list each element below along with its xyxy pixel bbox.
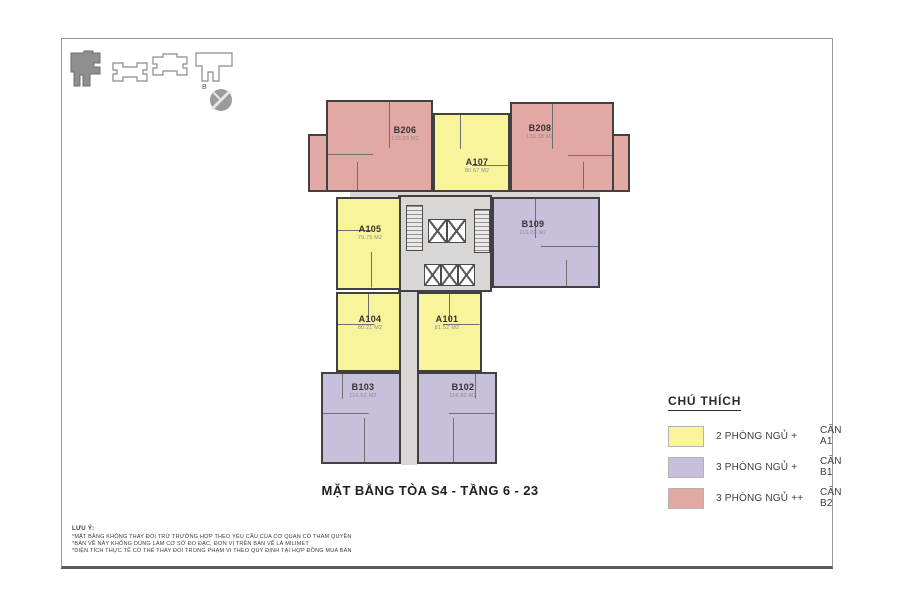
stairs-icon bbox=[406, 205, 423, 251]
unit-area-label: 81.52 M2 bbox=[419, 325, 475, 331]
unit-area-label: 133.38 M2 bbox=[512, 134, 568, 140]
elevator-icon bbox=[447, 219, 466, 243]
legend-swatch-a1 bbox=[668, 426, 704, 447]
unit-id-label: B208 bbox=[512, 124, 568, 133]
legend: CHÚ THÍCH 2 PHÒNG NGỦ + CĂN A1 3 PHÒNG N… bbox=[668, 392, 843, 509]
unit-a105: A105 79.75 M2 bbox=[336, 197, 401, 290]
unit-b206: B206 133.29 M2 bbox=[326, 100, 433, 192]
elevator-icon bbox=[424, 264, 441, 286]
unit-area-label: 116.62 M2 bbox=[333, 393, 393, 399]
elevator-icon bbox=[458, 264, 475, 286]
unit-b208: B208 133.38 M2 bbox=[510, 102, 614, 192]
notes: LƯU Ý: *MẶT BẰNG KHÔNG THAY ĐỔI TRỪ TRƯỜ… bbox=[72, 526, 352, 555]
legend-swatch-b2 bbox=[668, 488, 704, 509]
legend-heading: CHÚ THÍCH bbox=[668, 394, 741, 411]
unit-id-label: B102 bbox=[433, 383, 493, 392]
elevator-icon bbox=[428, 219, 447, 243]
note-line: *MẶT BẰNG KHÔNG THAY ĐỔI TRỪ TRƯỜNG HỢP … bbox=[72, 534, 352, 541]
legend-label: 3 PHÒNG NGỦ ++ bbox=[716, 493, 820, 504]
notes-heading: LƯU Ý: bbox=[72, 526, 352, 532]
core bbox=[398, 195, 492, 292]
note-line: *BẢN VẼ NÀY KHÔNG DÙNG LÀM CƠ SỞ ĐO ĐẠC,… bbox=[72, 541, 352, 548]
compass-icon bbox=[208, 87, 234, 113]
legend-item-b1: 3 PHÒNG NGỦ + CĂN B1 bbox=[668, 456, 843, 478]
legend-item-b2: 3 PHÒNG NGỦ ++ CĂN B2 bbox=[668, 487, 843, 509]
legend-swatch-b1 bbox=[668, 457, 704, 478]
unit-id-label: B103 bbox=[333, 383, 393, 392]
keyplan-shape-4 bbox=[194, 50, 236, 86]
unit-area-label: 116.82 M2 bbox=[433, 393, 493, 399]
legend-unit-label: CĂN B1 bbox=[820, 456, 843, 478]
unit-area-label: 116.03 M2 bbox=[503, 230, 563, 236]
legend-unit-label: CĂN A1 bbox=[820, 425, 843, 447]
unit-area-label: 80.21 M2 bbox=[340, 325, 400, 331]
legend-unit-label: CĂN B2 bbox=[820, 487, 843, 509]
unit-id-label: A107 bbox=[447, 158, 507, 167]
legend-label: 3 PHÒNG NGỦ + bbox=[716, 462, 820, 473]
keyplan-shape-highlighted bbox=[68, 48, 106, 88]
legend-label: 2 PHÒNG NGỦ + bbox=[716, 431, 820, 442]
plan-title: MẶT BẰNG TÒA S4 - TẦNG 6 - 23 bbox=[240, 483, 620, 498]
unit-b102: B102 116.82 M2 bbox=[417, 372, 497, 464]
unit-id-label: A101 bbox=[419, 315, 475, 324]
unit-id-label: B109 bbox=[503, 220, 563, 229]
unit-area-label: 80.67 M2 bbox=[447, 168, 507, 174]
unit-area-label: 79.75 M2 bbox=[340, 235, 400, 241]
unit-id-label: A104 bbox=[340, 315, 400, 324]
unit-id-label: B206 bbox=[375, 126, 435, 135]
unit-b109: B109 116.03 M2 bbox=[492, 197, 600, 288]
unit-id-label: A105 bbox=[340, 225, 400, 234]
unit-a101: A101 81.52 M2 bbox=[417, 292, 482, 372]
note-line: *DIỆN TÍCH THỰC TẾ CÓ THỂ THAY ĐỔI TRONG… bbox=[72, 548, 352, 555]
stairs-icon bbox=[474, 209, 490, 253]
unit-b103: B103 116.62 M2 bbox=[321, 372, 401, 464]
elevator-icon bbox=[441, 264, 458, 286]
keyplan-shape-3 bbox=[152, 52, 188, 79]
unit-a104: A104 80.21 M2 bbox=[336, 292, 401, 372]
keyplan-shape-2 bbox=[112, 58, 148, 85]
unit-a107: A107 80.67 M2 bbox=[433, 113, 510, 192]
north-label: B bbox=[202, 84, 207, 91]
legend-item-a1: 2 PHÒNG NGỦ + CĂN A1 bbox=[668, 425, 843, 447]
unit-area-label: 133.29 M2 bbox=[375, 136, 435, 142]
